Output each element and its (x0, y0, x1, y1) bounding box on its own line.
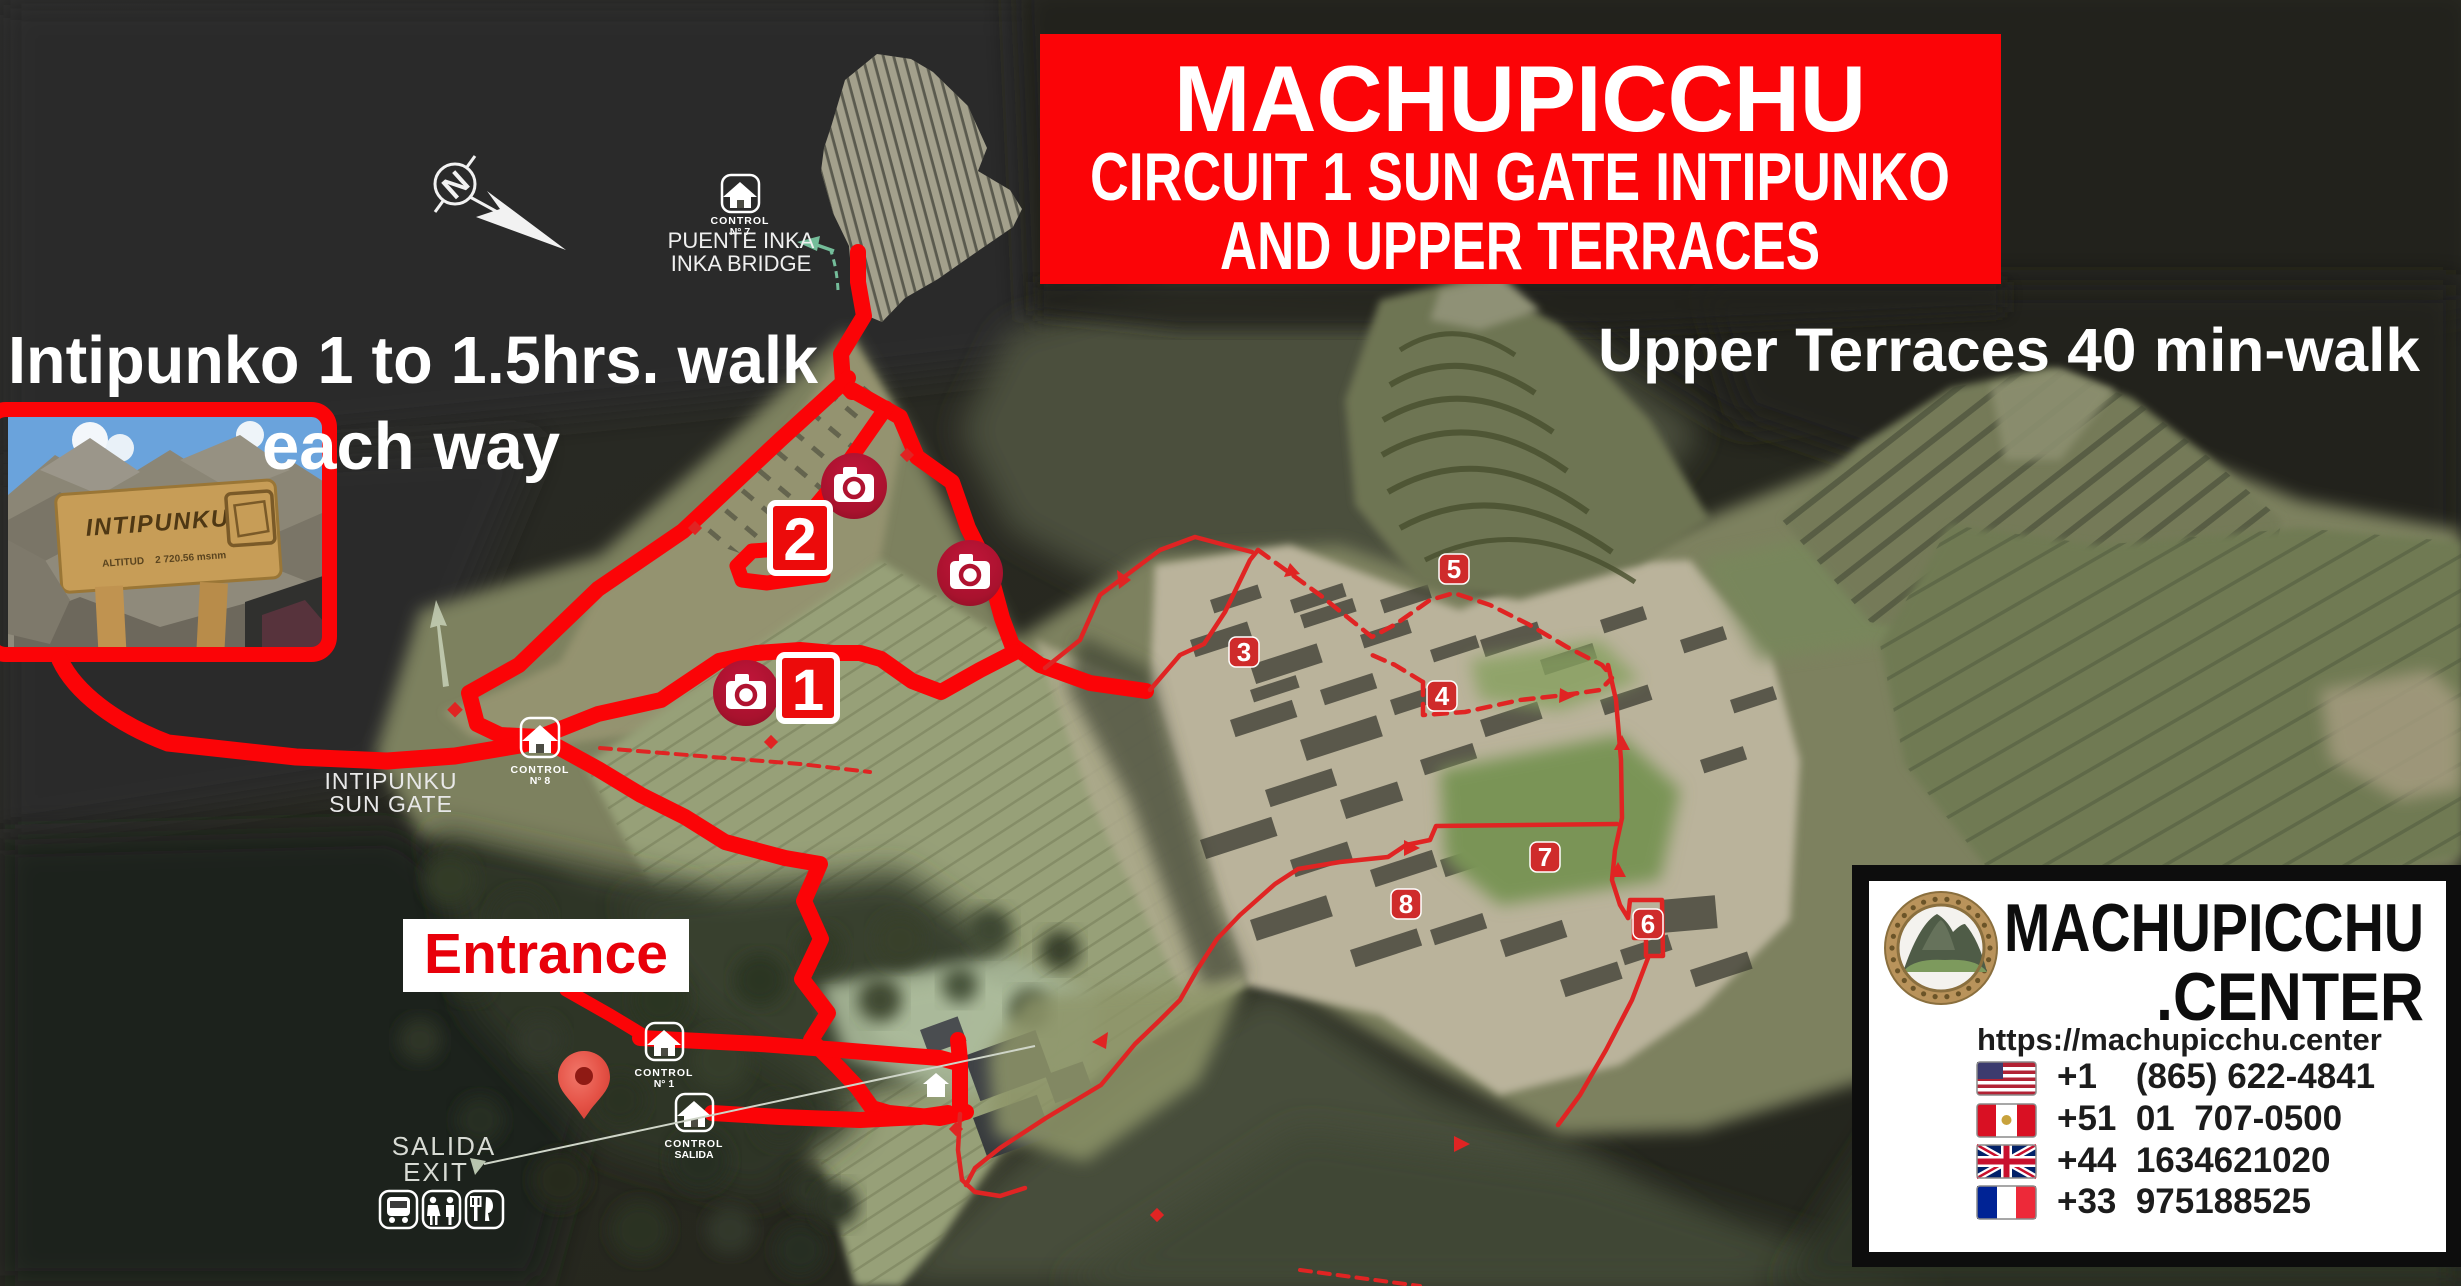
svg-text:PUENTE INKA: PUENTE INKA (668, 228, 815, 253)
svg-text:each way: each way (262, 409, 560, 484)
svg-text:MACHUPICCHU: MACHUPICCHU (2004, 890, 2424, 966)
svg-text:SALIDA: SALIDA (674, 1149, 714, 1161)
svg-text:3: 3 (1237, 637, 1251, 667)
svg-text:N° 1: N° 1 (654, 1078, 675, 1090)
svg-text:EXIT: EXIT (403, 1157, 469, 1187)
svg-text:MACHUPICCHU: MACHUPICCHU (1174, 46, 1866, 151)
svg-text:+1 (865) 622-4841: +1 (865) 622-4841 (2057, 1057, 2375, 1096)
svg-text:Upper Terraces 40 min-walk: Upper Terraces 40 min-walk (1598, 316, 2420, 384)
svg-text:5: 5 (1447, 554, 1461, 584)
svg-text:7: 7 (1538, 842, 1552, 872)
svg-text:Entrance: Entrance (424, 922, 668, 986)
svg-text:+44 1634621020: +44 1634621020 (2057, 1141, 2330, 1180)
svg-text:2: 2 (783, 506, 816, 573)
svg-text:+51 01 707-0500: +51 01 707-0500 (2057, 1099, 2342, 1138)
svg-text:INKA BRIDGE: INKA BRIDGE (671, 251, 812, 276)
svg-text:1: 1 (792, 658, 824, 723)
svg-text:8: 8 (1399, 889, 1413, 919)
svg-text:+33 975188525: +33 975188525 (2057, 1182, 2311, 1221)
svg-text:Intipunko 1 to 1.5hrs. walk: Intipunko 1 to 1.5hrs. walk (8, 323, 819, 398)
svg-text:CIRCUIT 1 SUN GATE INTIPUNKO: CIRCUIT 1 SUN GATE INTIPUNKO (1090, 139, 1950, 215)
svg-text:6: 6 (1641, 909, 1655, 939)
svg-text:AND UPPER TERRACES: AND UPPER TERRACES (1220, 208, 1820, 284)
svg-text:4: 4 (1435, 681, 1450, 711)
svg-text:SUN GATE: SUN GATE (329, 791, 453, 817)
svg-text:https://machupicchu.center: https://machupicchu.center (1977, 1022, 2382, 1057)
svg-text:N° 8: N° 8 (530, 775, 551, 787)
